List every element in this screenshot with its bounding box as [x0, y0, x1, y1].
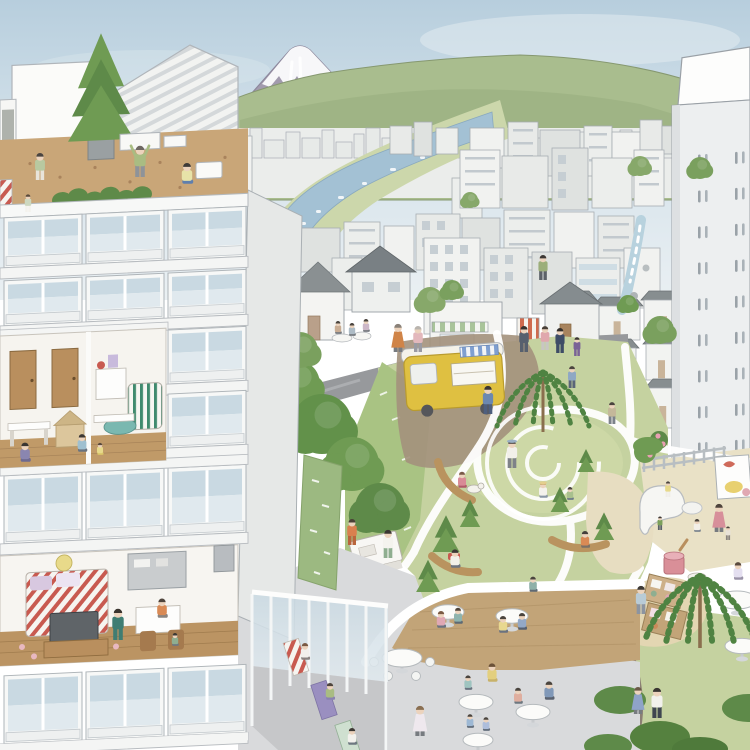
lamp [56, 555, 72, 572]
yoga-studio [252, 592, 388, 750]
balcony-bay [86, 668, 164, 740]
skyline-building [286, 132, 300, 158]
city-building [592, 158, 632, 208]
skyline-building [322, 130, 334, 158]
balcony-bay [168, 206, 246, 260]
tower-edge-shade [672, 105, 680, 494]
truck-awning [460, 345, 499, 358]
city-illustration [0, 0, 750, 750]
moss-wall [298, 455, 342, 590]
skyline-building [302, 138, 320, 158]
person [363, 319, 370, 332]
pillow [30, 576, 52, 591]
stock-pot [214, 545, 234, 572]
balcony-bay [168, 664, 246, 736]
terrace-table [353, 332, 371, 340]
pillow [56, 572, 80, 587]
city-building [390, 126, 412, 154]
person [349, 323, 356, 336]
city-building [436, 128, 458, 154]
kitchen-counter [128, 551, 186, 590]
truck-windshield [410, 363, 437, 385]
balcony-bay [168, 326, 246, 384]
purple-box [108, 354, 118, 367]
interior-living-floor [0, 545, 238, 666]
balcony-bay [4, 472, 82, 544]
chair [140, 631, 156, 652]
building-front [0, 26, 248, 750]
city-building [640, 120, 662, 150]
balcony-bay [86, 210, 164, 264]
right-tower [672, 47, 750, 493]
city-building [552, 148, 588, 210]
balcony-floors [0, 206, 248, 750]
dog-head [478, 483, 484, 489]
balcony-bay [168, 464, 246, 536]
city-building [414, 122, 432, 156]
kids-art-sign [715, 455, 750, 499]
balcony-bay [4, 277, 82, 326]
planter-box [164, 135, 186, 147]
balcony-bay [86, 468, 164, 540]
bush-tree [633, 437, 663, 455]
person [734, 562, 744, 580]
room-partition [86, 332, 91, 464]
shelf [96, 368, 126, 399]
balcony-bay [4, 214, 82, 268]
skyline-building [354, 134, 364, 158]
skyline-building [336, 142, 352, 158]
tv [50, 611, 98, 643]
illustration-stage [0, 0, 750, 750]
terrace-table [332, 334, 352, 342]
balcony-bay [168, 390, 246, 448]
city-building [502, 156, 548, 208]
cooler-box [196, 162, 222, 179]
balcony-bay [4, 672, 82, 744]
skyline-building [264, 140, 284, 158]
desk [8, 422, 50, 431]
desk [94, 414, 134, 423]
shop-awning [432, 322, 488, 332]
balcony-bay [168, 269, 246, 318]
balcony-bay [86, 273, 164, 322]
play-mound [682, 502, 702, 514]
tower-face [672, 100, 750, 493]
tv-stand [44, 639, 108, 658]
